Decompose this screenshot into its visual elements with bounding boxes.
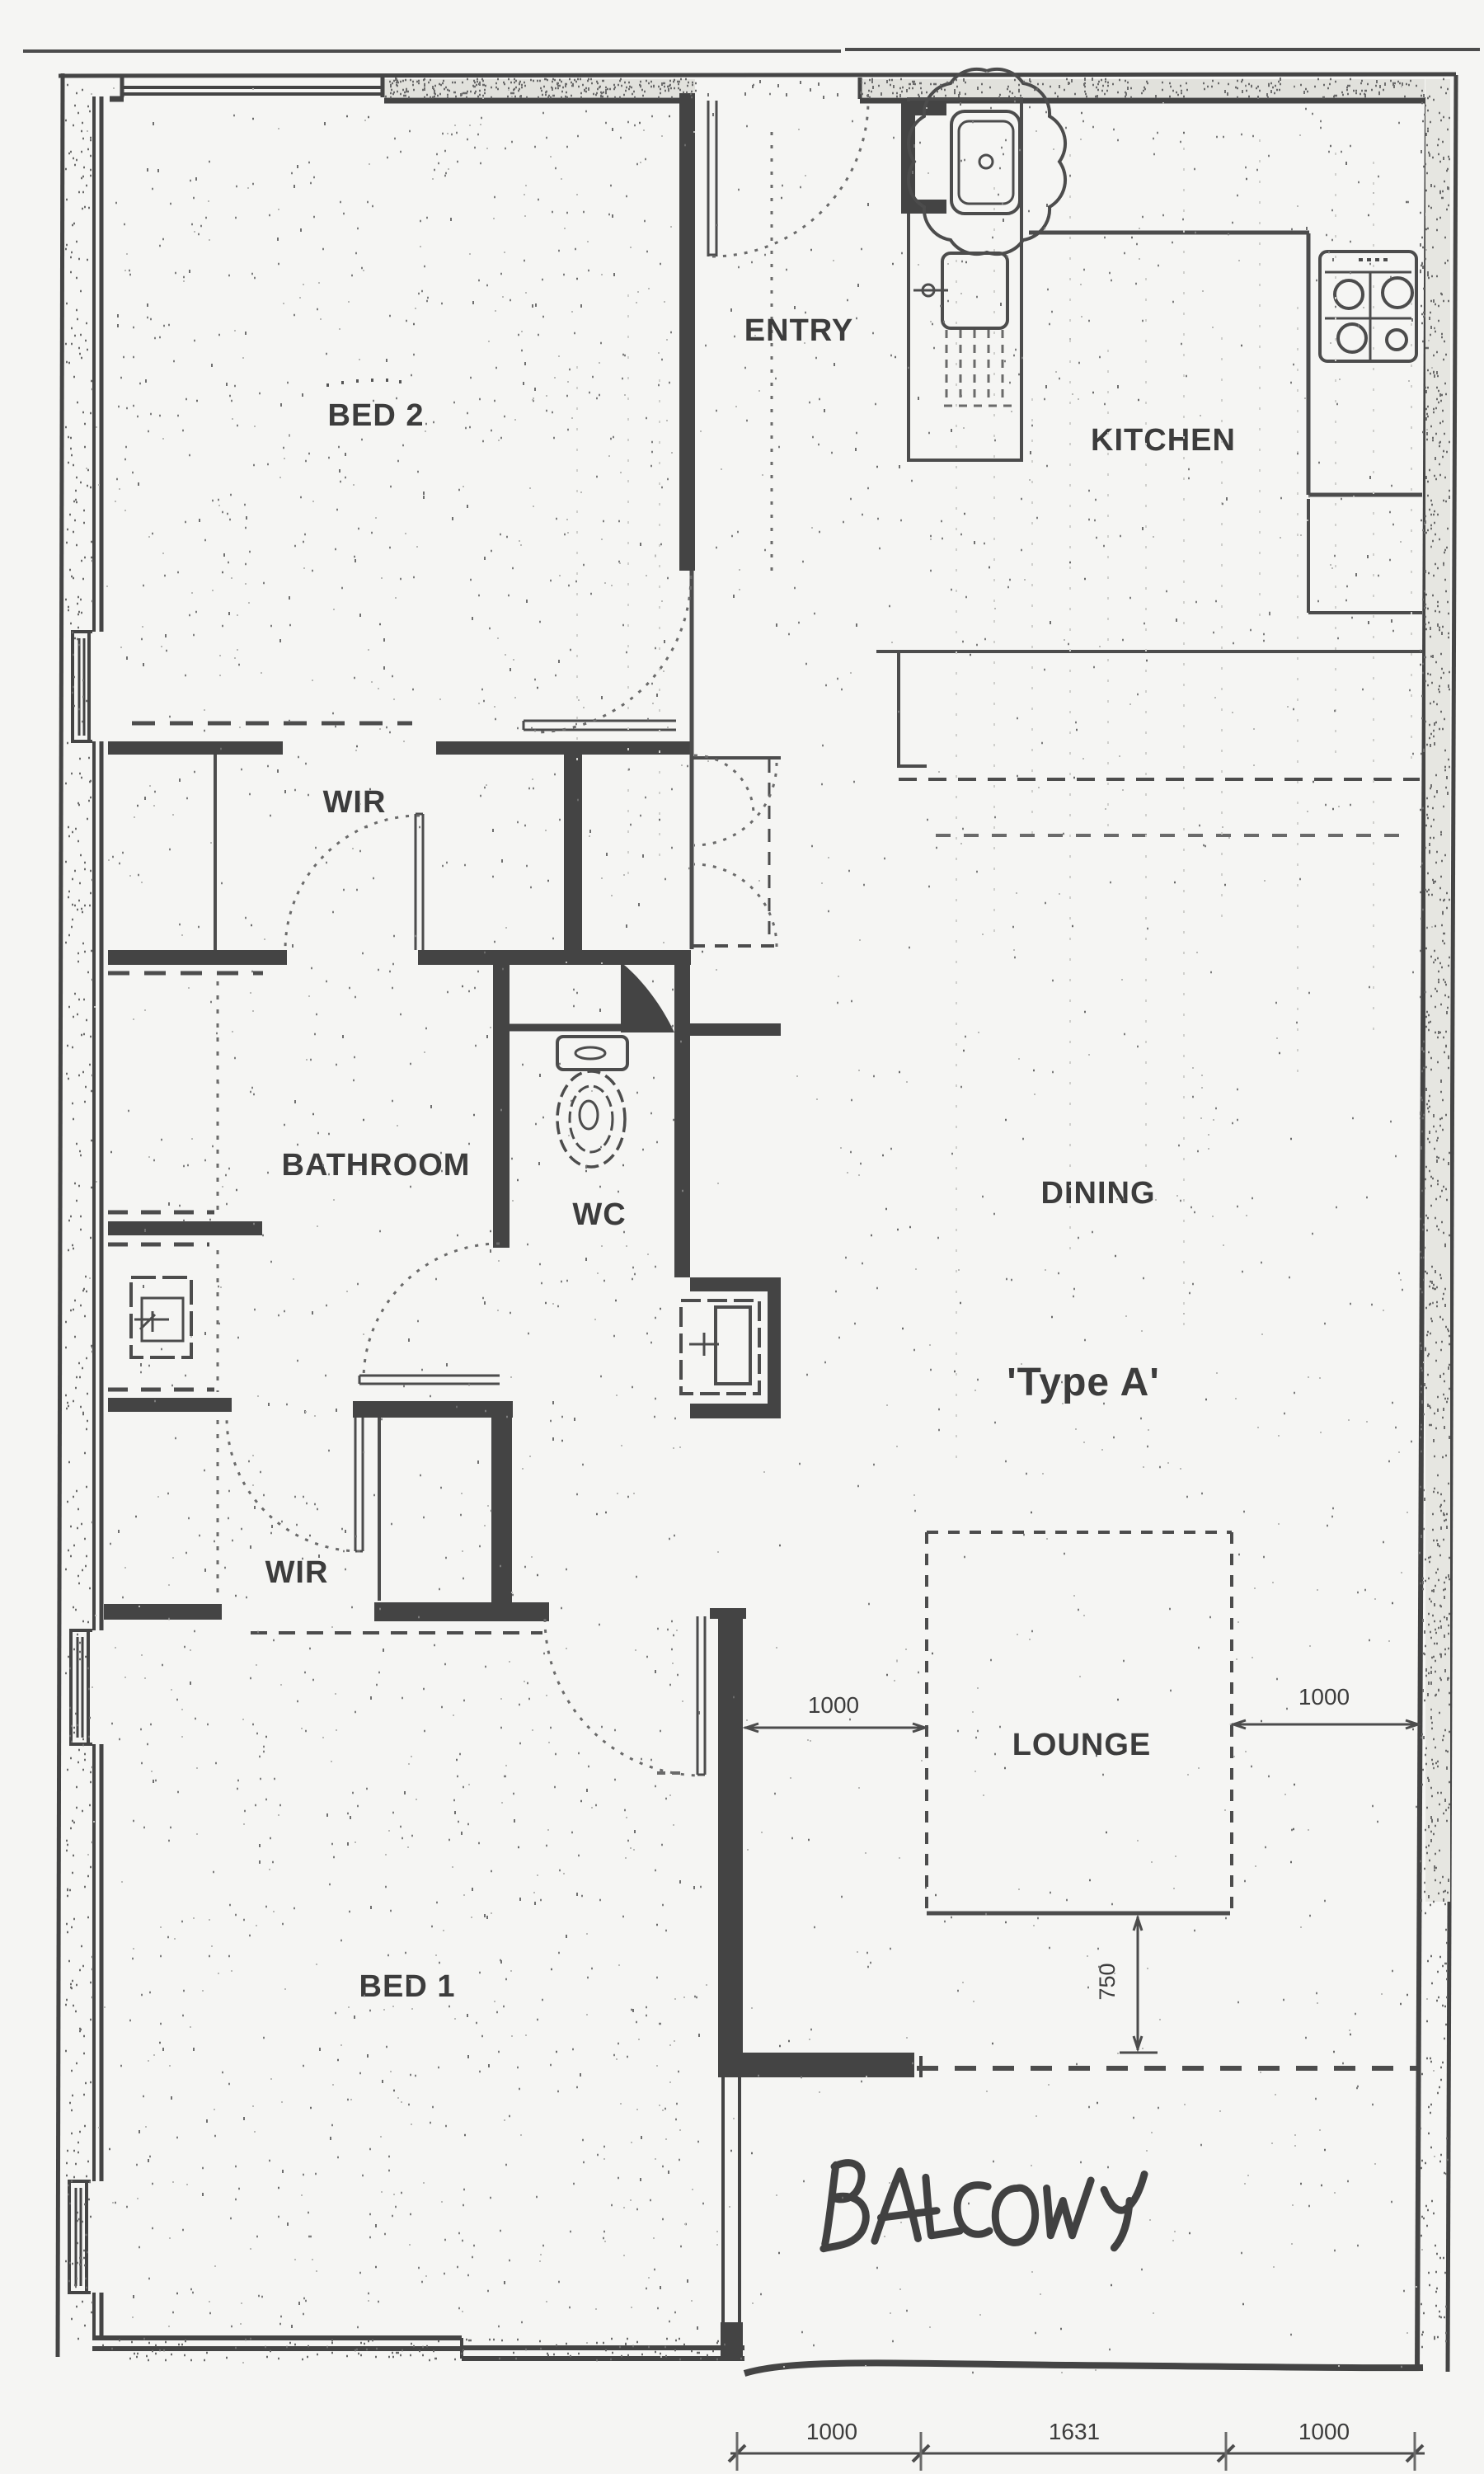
svg-text:ENTRY: ENTRY	[744, 313, 853, 348]
svg-text:1000: 1000	[806, 2419, 857, 2444]
svg-text:KITCHEN: KITCHEN	[1091, 423, 1236, 458]
svg-text:WC: WC	[572, 1197, 626, 1232]
svg-text:BATHROOM: BATHROOM	[282, 1148, 471, 1183]
svg-text:750: 750	[1095, 1963, 1120, 2000]
svg-text:1000: 1000	[1298, 2419, 1350, 2444]
svg-text:BED 1: BED 1	[359, 1969, 456, 2004]
svg-text:WIR: WIR	[265, 1555, 329, 1590]
svg-text:1631: 1631	[1049, 2419, 1100, 2444]
svg-text:WIR: WIR	[323, 785, 387, 820]
svg-text:1000: 1000	[1298, 1684, 1350, 1710]
svg-text:DINING: DINING	[1041, 1176, 1156, 1211]
svg-text:LOUNGE: LOUNGE	[1012, 1728, 1152, 1762]
svg-text:1000: 1000	[808, 1692, 859, 1718]
svg-text:'Type A': 'Type A'	[1007, 1361, 1160, 1404]
svg-text:BED 2: BED 2	[328, 398, 425, 433]
